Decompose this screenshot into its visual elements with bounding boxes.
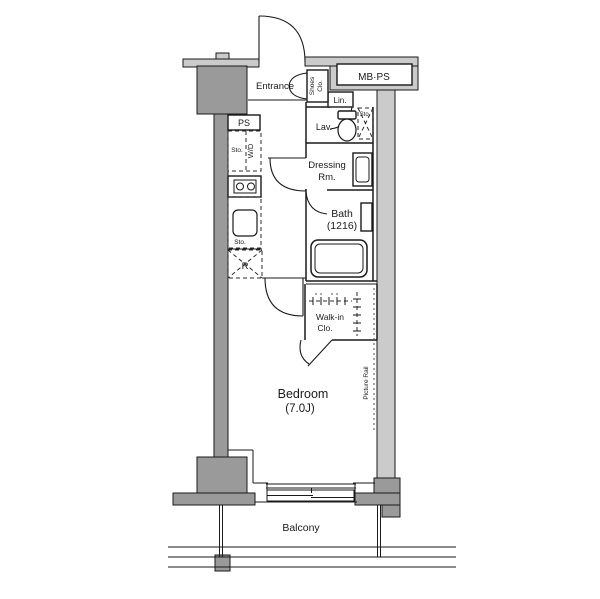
storage-sink-label: Sto. [234,239,246,246]
refrigerator-label: R [242,261,249,272]
shoes-closet-label-1: Shoes [309,76,316,95]
storage-upper-right-label: Sto. [360,112,371,118]
bedroom-label-1: Bedroom [278,387,329,401]
entrance-door-arc [259,16,305,62]
mbps-label: MB·PS [358,72,390,83]
toilet [338,111,356,141]
left-wall-strip [214,114,228,459]
bedroom-label-2: (7.0J) [285,403,315,415]
storage-kitchen-label: Sto. [231,147,243,154]
floor-plan-canvas: MB·PS Entrance Shoes Clo. Lin. Sto. Lav.… [0,0,600,599]
bedroom-window [255,484,357,502]
bottom-wall-right [355,493,400,505]
right-outer-wall [377,90,395,478]
washer-dryer-label: W/D [246,143,255,158]
bottom-right-block [374,478,400,493]
bottom-wall-left [173,493,255,505]
dressing-label-2: Rm. [318,172,335,183]
bath-counter [361,203,372,231]
bath-label-2: (1216) [327,220,357,232]
balcony-railing [168,505,456,567]
labels: MB·PS Entrance Shoes Clo. Lin. Sto. Lav.… [231,72,390,534]
bath-label-1: Bath [331,208,353,220]
wic-label-1: Walk-in [316,312,344,322]
floor-plan: MB·PS Entrance Shoes Clo. Lin. Sto. Lav.… [0,0,600,599]
ps-label: PS [238,118,250,128]
bath-door-arc [306,192,327,214]
shoes-closet-label-2: Clo. [317,80,324,92]
vanity [353,153,372,186]
bathtub [311,240,367,277]
top-wall-tab [216,53,229,59]
bedroom-door-arc [265,278,303,316]
dressing-label-1: Dressing [308,160,346,171]
balcony-label: Balcony [282,522,320,534]
wic-door-leaf [308,340,332,366]
dressing-door-arc [270,158,306,191]
wic-label-2: Clo. [317,323,332,333]
stove [228,176,261,197]
sink [233,210,257,236]
column-top-left [197,66,247,114]
picture-rail-label: Picture Rail [363,366,370,400]
lavatory-label: Lav. [316,122,332,132]
entrance-label: Entrance [256,81,294,92]
linen-label: Lin. [334,96,347,105]
bottom-right-step [382,505,400,517]
wic-door-arc [300,340,309,364]
